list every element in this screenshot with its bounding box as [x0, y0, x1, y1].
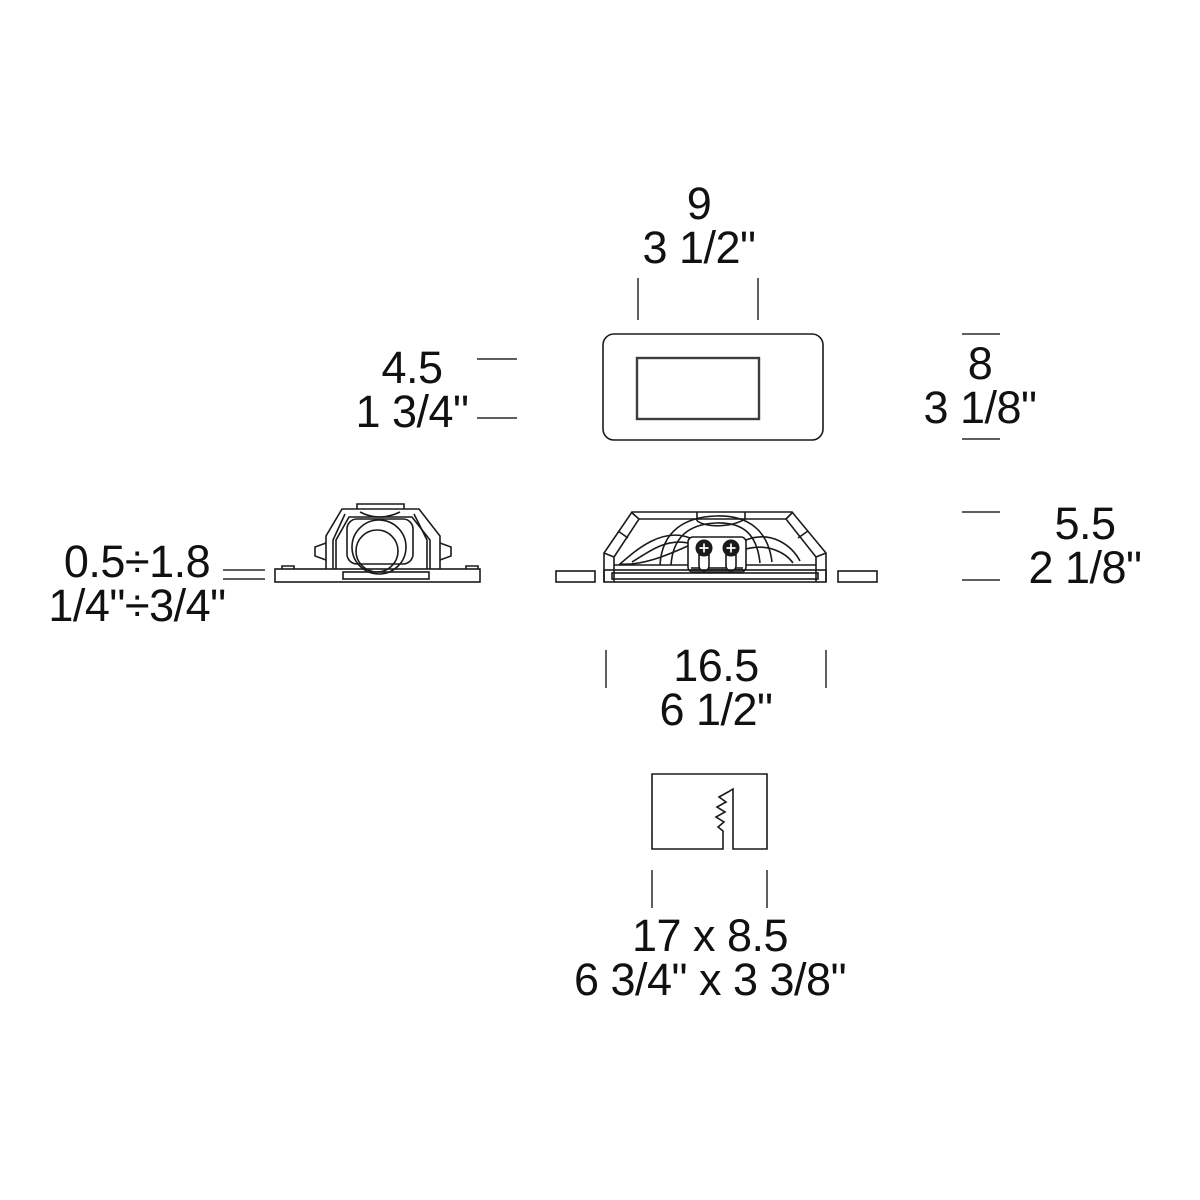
front-view-drawing: [603, 334, 823, 440]
dim-body-height: 5.5 2 1/8": [1028, 502, 1141, 590]
dim-recess-depth: 0.5÷1.8 1/4"÷3/4": [48, 540, 225, 628]
dim-plate-width: 16.5 6 1/2": [659, 644, 772, 732]
dim-window-width: 9 3 1/2": [642, 182, 755, 270]
dim-plate-height-imperial: 3 1/8": [923, 386, 1036, 430]
dim-window-width-imperial: 3 1/2": [642, 226, 755, 270]
dim-plate-height-metric: 8: [923, 342, 1036, 386]
cutout-template-drawing: [652, 774, 767, 849]
dim-cutout-size-imperial: 6 3/4" x 3 3/8": [574, 958, 846, 1002]
dim-window-height: 4.5 1 3/4": [355, 346, 468, 434]
dim-body-height-metric: 5.5: [1028, 502, 1141, 546]
dim-window-width-metric: 9: [642, 182, 755, 226]
dimension-ticks: [223, 278, 1000, 908]
dim-window-height-metric: 4.5: [355, 346, 468, 390]
dim-plate-height: 8 3 1/8": [923, 342, 1036, 430]
side-view-drawing: [275, 504, 480, 582]
section-view-drawing: [556, 512, 877, 582]
dim-cutout-size: 17 x 8.5 6 3/4" x 3 3/8": [574, 914, 846, 1002]
dim-plate-width-metric: 16.5: [659, 644, 772, 688]
technical-drawing-canvas: 9 3 1/2" 4.5 1 3/4" 8 3 1/8" 0.5÷1.8 1/4…: [0, 0, 1200, 1200]
dim-recess-depth-imperial: 1/4"÷3/4": [48, 584, 225, 628]
dim-cutout-size-metric: 17 x 8.5: [574, 914, 846, 958]
dim-window-height-imperial: 1 3/4": [355, 390, 468, 434]
dim-body-height-imperial: 2 1/8": [1028, 546, 1141, 590]
dim-recess-depth-metric: 0.5÷1.8: [48, 540, 225, 584]
dim-plate-width-imperial: 6 1/2": [659, 688, 772, 732]
